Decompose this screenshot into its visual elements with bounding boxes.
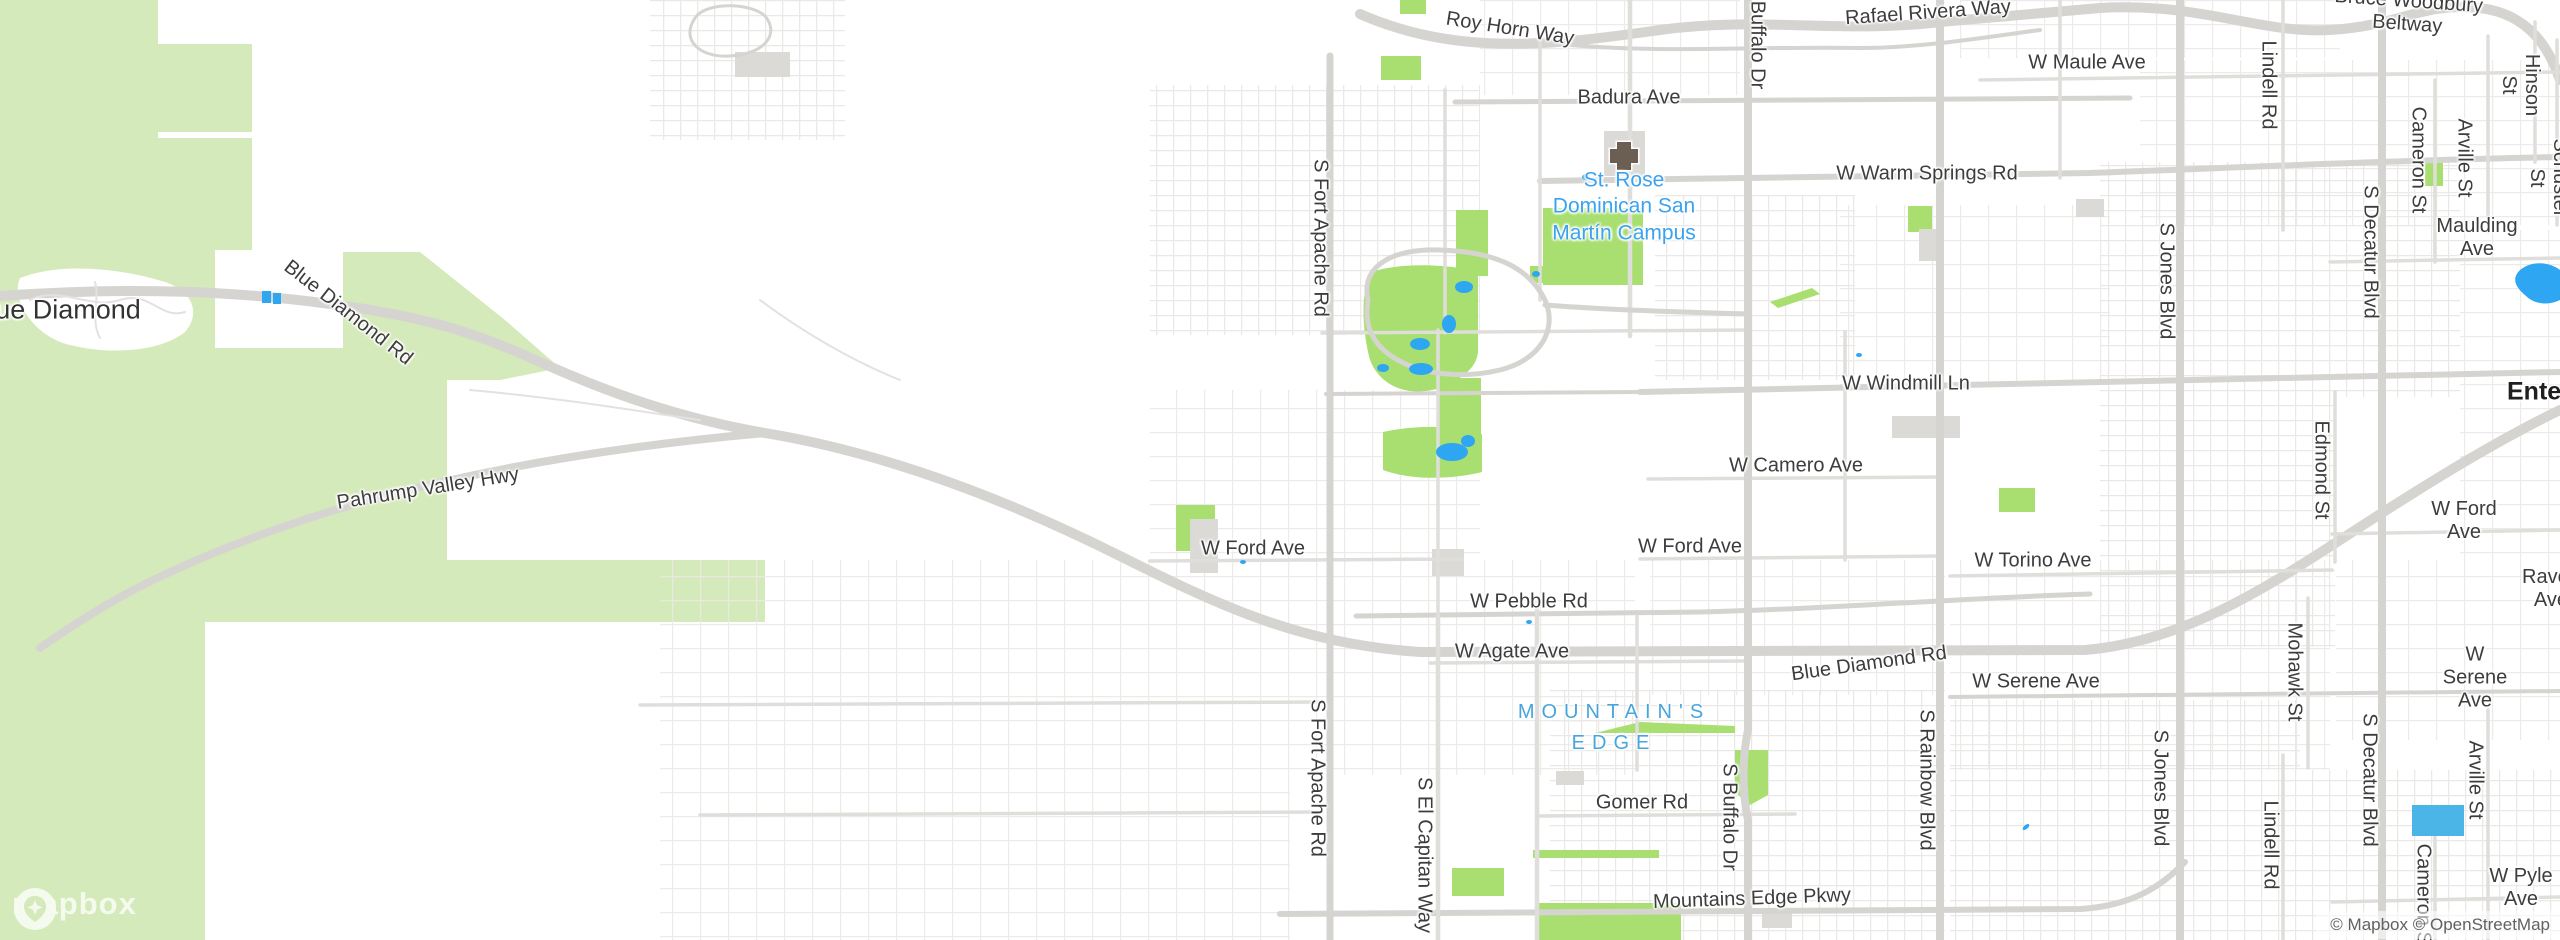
mapbox-pin-icon — [12, 886, 58, 932]
map-canvas[interactable]: Roy Horn WayRafael Rivera WayBruce Woodb… — [0, 0, 2560, 940]
terrain-green-areas — [0, 0, 765, 940]
attribution-text[interactable]: © Mapbox © OpenStreetMap — [2330, 915, 2550, 935]
attribution-bar[interactable]: © Mapbox © OpenStreetMap — [2316, 911, 2560, 939]
mapbox-logo[interactable]: mapbox — [12, 886, 137, 922]
map-base-layer — [0, 0, 2560, 940]
